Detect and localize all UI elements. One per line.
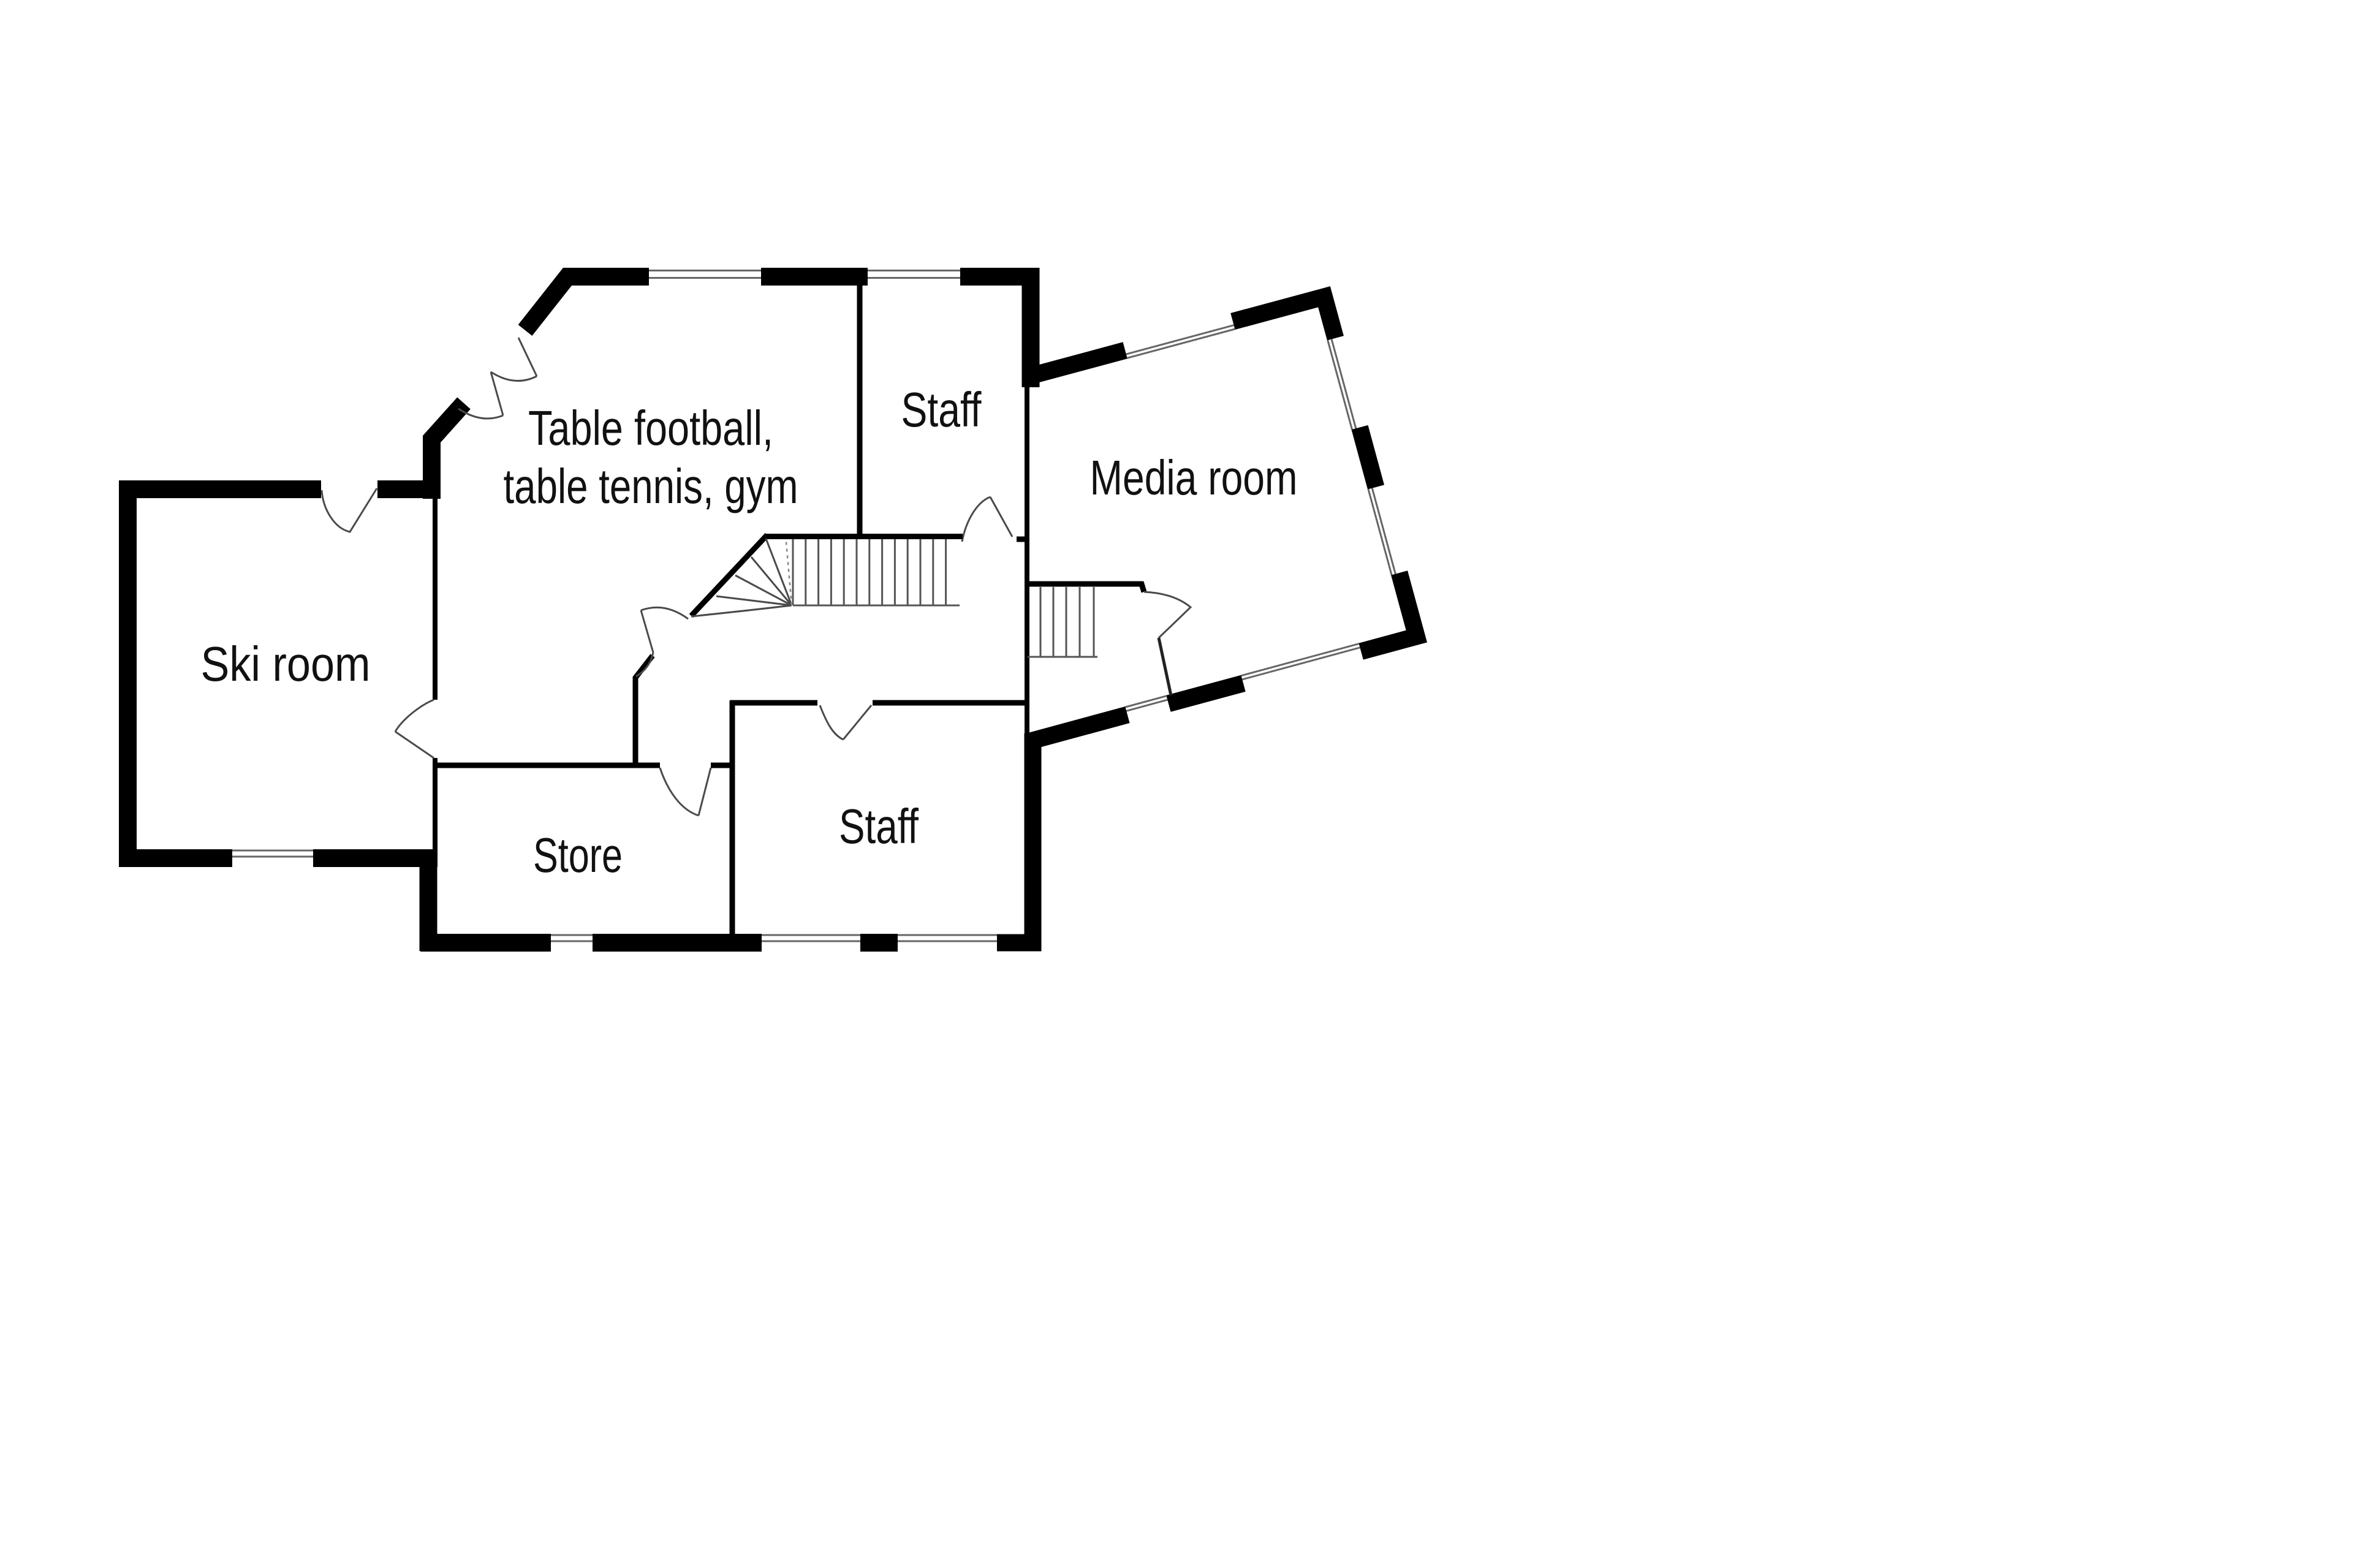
- svg-text:Store: Store: [533, 828, 623, 882]
- svg-text:table tennis, gym: table tennis, gym: [504, 459, 798, 513]
- svg-text:Table football,: Table football,: [528, 401, 773, 455]
- svg-text:Media room: Media room: [1090, 450, 1298, 505]
- svg-text:Ski room: Ski room: [201, 637, 371, 691]
- svg-text:Staff: Staff: [901, 382, 982, 437]
- svg-text:Staff: Staff: [839, 799, 919, 854]
